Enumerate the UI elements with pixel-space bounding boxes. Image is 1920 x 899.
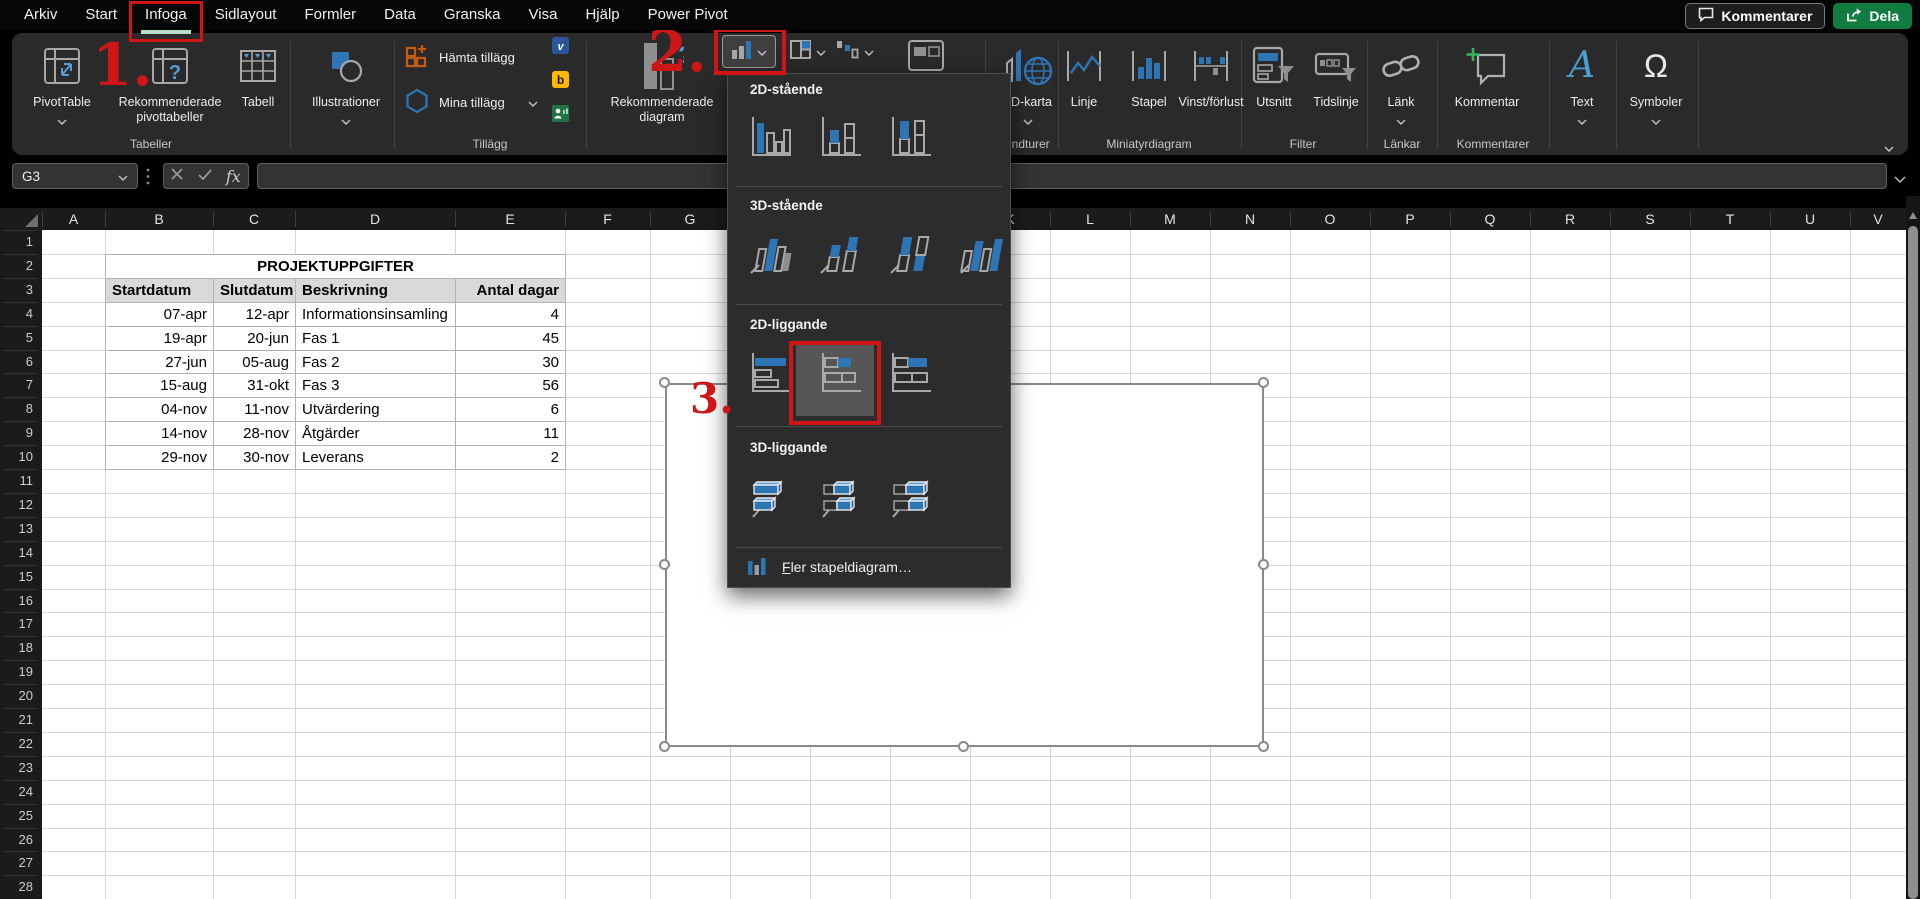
tab-label: Data — [384, 6, 416, 23]
tab-hjälp[interactable]: Hjälp — [571, 0, 633, 30]
group-label-tabeller: Tabeller — [130, 137, 172, 153]
people-graph-addin-icon[interactable] — [552, 105, 569, 127]
excel-window: ArkivStartInfogaSidlayoutFormlerDataGran… — [0, 0, 1920, 899]
group-separator — [1437, 41, 1438, 149]
table-cell[interactable]: 6 — [456, 398, 566, 422]
illustrations-label: Illustrationer — [312, 95, 380, 110]
column-header-separator — [1530, 211, 1531, 227]
group-separator — [1616, 41, 1617, 149]
menu-icon-col3d-clustered[interactable] — [742, 226, 800, 284]
column-header-A[interactable]: A — [42, 208, 105, 230]
row-header-separator — [4, 278, 38, 279]
tab-label: Arkiv — [24, 6, 57, 23]
menu-icon-bar3d-clustered[interactable] — [742, 470, 800, 528]
chart-selection-handle[interactable] — [1258, 559, 1269, 570]
column-header-M[interactable]: M — [1130, 208, 1210, 230]
menu-divider — [736, 547, 1002, 548]
tab-formler[interactable]: Formler — [290, 0, 370, 30]
timeline-button[interactable]: Tidslinje — [1305, 37, 1367, 110]
line-button[interactable]: Linje — [1053, 37, 1115, 110]
ribbon-tabs: ArkivStartInfogaSidlayoutFormlerDataGran… — [10, 0, 742, 30]
table-header-cell[interactable]: Antal dagar — [456, 279, 566, 303]
gridline-horizontal — [42, 851, 1906, 852]
svg-text:?: ? — [169, 62, 181, 84]
cancel-icon[interactable] — [171, 167, 183, 185]
group-label-miniatyrdiagram: Miniatyrdiagram — [1106, 137, 1191, 153]
get-addins-icon — [404, 43, 430, 72]
gridline-horizontal — [42, 756, 1906, 757]
column-header-N[interactable]: N — [1210, 208, 1290, 230]
row-header-separator — [4, 732, 38, 733]
group-separator — [1367, 41, 1368, 149]
waterfall-chart-icon — [836, 40, 859, 64]
column-header-Q[interactable]: Q — [1450, 208, 1530, 230]
row-header-21[interactable]: 21 — [0, 708, 42, 732]
column-header-separator — [1770, 211, 1771, 227]
annotation-step-2: 2. — [648, 24, 706, 80]
menu-section-3d-stående: 3D-stående — [750, 198, 823, 213]
row-header-4[interactable]: 4 — [0, 302, 42, 326]
symbols-button[interactable]: ΩSymboler — [1622, 37, 1690, 130]
table-button[interactable]: Tabell — [228, 37, 288, 110]
timeline-label: Tidslinje — [1313, 95, 1358, 110]
pivottable-icon — [42, 37, 82, 95]
table-cell[interactable]: 29-nov — [106, 446, 214, 470]
group-label-filter: Filter — [1290, 137, 1317, 153]
sparkline-winloss-icon — [1191, 37, 1231, 95]
group-separator — [1549, 41, 1550, 149]
row-header-separator — [4, 589, 38, 590]
hierarchy-chart-icon — [790, 40, 811, 64]
menu-icon-col3d-stacked[interactable] — [812, 226, 870, 284]
menu-icon-bar3d-stacked[interactable] — [812, 470, 870, 528]
column-header-separator — [1450, 211, 1451, 227]
bing-addin-icon[interactable]: b — [552, 71, 569, 93]
select-all-button[interactable] — [0, 208, 42, 230]
tab-label: Granska — [444, 6, 501, 23]
tab-label: Visa — [529, 6, 558, 23]
group-separator — [586, 41, 587, 149]
recommended-charts-label: Rekommenderade diagram — [588, 95, 736, 125]
row-header-separator — [4, 517, 38, 518]
gridline-horizontal — [42, 780, 1906, 781]
comment-bubble-icon — [1698, 7, 1714, 25]
comments-button-label: Kommentarer — [1721, 8, 1812, 24]
column-header-separator — [1370, 211, 1371, 227]
table-header-cell[interactable]: Startdatum — [106, 279, 214, 303]
menu-section-3d-liggande: 3D-liggande — [750, 440, 827, 455]
my-addins-icon — [404, 88, 430, 117]
column-header-separator — [565, 211, 566, 227]
table-cell[interactable]: 19-apr — [106, 327, 214, 351]
table-cell[interactable]: 27-jun — [106, 351, 214, 375]
table-cell[interactable]: Leverans — [296, 446, 456, 470]
column-header-separator — [295, 211, 296, 227]
visio-addin-icon[interactable]: v — [552, 37, 569, 59]
row-header-separator — [4, 804, 38, 805]
enter-icon[interactable] — [198, 167, 212, 185]
chart-selection-handle[interactable] — [659, 741, 670, 752]
get-addins-button[interactable]: Hämta tillägg — [404, 43, 515, 72]
column-header-separator — [105, 211, 106, 227]
row-header-22[interactable]: 22 — [0, 732, 42, 756]
column-header-B[interactable]: B — [105, 208, 213, 230]
row-header-separator — [4, 636, 38, 637]
menu-icon-bar-100[interactable] — [882, 344, 940, 402]
comments-button[interactable]: Kommentarer — [1685, 3, 1825, 29]
annotation-box-infoga — [129, 1, 203, 42]
chart-selection-handle[interactable] — [659, 559, 670, 570]
table-cell[interactable]: 2 — [456, 446, 566, 470]
maps-icon[interactable] — [908, 40, 944, 76]
table-cell[interactable]: Fas 2 — [296, 351, 456, 375]
table-cell[interactable]: 31-okt — [214, 374, 296, 398]
menu-icon-col-100[interactable] — [882, 108, 940, 166]
new-comment-icon — [1464, 37, 1510, 95]
table-header-cell[interactable]: Beskrivning — [296, 279, 456, 303]
tab-label: Power Pivot — [648, 6, 728, 23]
group-separator — [1698, 41, 1699, 149]
line-label: Linje — [1071, 95, 1097, 110]
winloss-label: Vinst/förlust — [1178, 95, 1243, 110]
timeline-icon — [1314, 37, 1358, 95]
table-cell[interactable]: 04-nov — [106, 398, 214, 422]
column-header-U[interactable]: U — [1770, 208, 1850, 230]
row-header-17[interactable]: 17 — [0, 612, 42, 636]
column-header-separator — [213, 211, 214, 227]
column-header-separator — [42, 211, 43, 227]
row-header-27[interactable]: 27 — [0, 851, 42, 875]
column-header-separator — [1610, 211, 1611, 227]
row-header-separator — [4, 302, 38, 303]
tab-label: Sidlayout — [215, 6, 277, 23]
get-addins-label: Hämta tillägg — [439, 50, 515, 65]
insert-function-icon[interactable]: fx — [226, 167, 241, 186]
symbols-icon: Ω — [1644, 37, 1668, 95]
collapse-ribbon-icon[interactable] — [1884, 139, 1894, 157]
menu-section-2d-liggande: 2D-liggande — [750, 317, 827, 332]
row-header-separator — [4, 350, 38, 351]
row-header-9[interactable]: 9 — [0, 421, 42, 445]
row-header-25[interactable]: 25 — [0, 804, 42, 828]
table-cell[interactable]: Informationsinsamling — [296, 303, 456, 327]
column-header-separator — [1210, 211, 1211, 227]
symbols-label: Symboler — [1630, 95, 1683, 110]
sparkline-column-icon — [1129, 37, 1169, 95]
formula-bar-grip-icon — [146, 168, 150, 190]
slicer-icon — [1252, 37, 1296, 95]
column-header-E[interactable]: E — [455, 208, 565, 230]
chart-selection-handle[interactable] — [1258, 741, 1269, 752]
column-header-separator — [1050, 211, 1051, 227]
menu-icon-col-stacked[interactable] — [812, 108, 870, 166]
menu-icon-bar3d-100[interactable] — [882, 470, 940, 528]
comment-button[interactable]: Kommentar — [1444, 37, 1530, 110]
menu-icon-col-clustered[interactable] — [742, 108, 800, 166]
chevron-down-icon — [1651, 112, 1661, 130]
row-header-18[interactable]: 18 — [0, 636, 42, 660]
table-cell[interactable]: 15-aug — [106, 374, 214, 398]
column-header-separator — [1290, 211, 1291, 227]
my-addins-button[interactable]: Mina tillägg — [404, 88, 538, 117]
annotation-box-chart-button — [714, 28, 786, 75]
recommended-pivottables-label: Rekommenderade pivottabeller — [104, 95, 236, 125]
row-header-separator — [4, 373, 38, 374]
column-header-L[interactable]: L — [1050, 208, 1130, 230]
group-separator — [394, 41, 395, 149]
table-cell[interactable]: 07-apr — [106, 303, 214, 327]
column-header-F[interactable]: F — [565, 208, 650, 230]
row-header-13[interactable]: 13 — [0, 517, 42, 541]
tab-label: Start — [85, 6, 117, 23]
more-charts-label: Fler stapeldiagram… — [782, 559, 912, 575]
tab-granska[interactable]: Granska — [430, 0, 515, 30]
map3d-label: 3D-karta — [1004, 95, 1052, 110]
tab-label: Formler — [304, 6, 356, 23]
table-title-cell[interactable]: PROJEKTUPPGIFTER — [106, 255, 566, 279]
more-charts-icon — [746, 556, 768, 579]
table-header-cell[interactable]: Slutdatum — [214, 279, 296, 303]
annotation-step-1: 1. — [92, 36, 153, 94]
row-header-15[interactable]: 15 — [0, 565, 42, 589]
row-header-separator — [4, 493, 38, 494]
text-label: Text — [1571, 95, 1594, 110]
group-separator — [290, 41, 291, 149]
insert-hierarchy-chart-button[interactable] — [790, 40, 826, 64]
column-header-S[interactable]: S — [1610, 208, 1690, 230]
column-header-V[interactable]: V — [1850, 208, 1906, 230]
formula-input[interactable] — [257, 163, 1887, 189]
menu-icon-col3d-100[interactable] — [882, 226, 940, 284]
gridline-horizontal — [42, 804, 1906, 805]
column-header-R[interactable]: R — [1530, 208, 1610, 230]
row-header-separator — [4, 851, 38, 852]
slicer-label: Utsnitt — [1256, 95, 1291, 110]
link-icon — [1380, 37, 1422, 95]
menu-divider — [736, 186, 1002, 187]
table-label: Tabell — [242, 95, 275, 110]
comment-label: Kommentar — [1455, 95, 1520, 110]
annotation-step-3: 3. — [690, 378, 734, 420]
chevron-down-icon — [1577, 112, 1587, 130]
illustrations-button[interactable]: Illustrationer — [300, 37, 392, 130]
column-header-P[interactable]: P — [1370, 208, 1450, 230]
table-cell[interactable]: 05-aug — [214, 351, 296, 375]
share-icon — [1846, 7, 1862, 25]
table-cell[interactable]: 14-nov — [106, 422, 214, 446]
table-cell[interactable]: 11-nov — [214, 398, 296, 422]
my-addins-label: Mina tillägg — [439, 95, 505, 110]
name-box-chevron-icon[interactable] — [118, 169, 128, 184]
link-label: Länk — [1387, 95, 1414, 110]
text-icon: A — [1569, 37, 1595, 95]
formula-buttons: fx — [163, 163, 249, 189]
gridline-horizontal — [42, 875, 1906, 876]
row-header-2[interactable]: 2 — [0, 254, 42, 278]
scrollbar-up-arrow-icon[interactable] — [1909, 212, 1917, 219]
menu-section-2d-stående: 2D-stående — [750, 82, 823, 97]
scrollbar-thumb[interactable] — [1908, 226, 1918, 899]
row-header-3[interactable]: 3 — [0, 278, 42, 302]
table-cell[interactable]: 30 — [456, 351, 566, 375]
table-cell[interactable]: 20-jun — [214, 327, 296, 351]
group-label-kommentarer: Kommentarer — [1457, 137, 1530, 153]
name-box-value: G3 — [22, 169, 40, 184]
row-header-19[interactable]: 19 — [0, 660, 42, 684]
link-button[interactable]: Länk — [1372, 37, 1430, 130]
recommended-pivottables-icon: ? — [150, 37, 190, 95]
row-header-8[interactable]: 8 — [0, 397, 42, 421]
row-header-26[interactable]: 26 — [0, 828, 42, 852]
row-header-separator — [4, 828, 38, 829]
row-header-separator — [4, 254, 38, 255]
titlebar-actions: Kommentarer Dela — [1685, 3, 1912, 29]
row-header-separator — [4, 421, 38, 422]
formula-bar-expand-icon[interactable] — [1894, 170, 1906, 188]
row-header-11[interactable]: 11 — [0, 469, 42, 493]
chart-selection-handle[interactable] — [659, 377, 670, 388]
menu-divider — [736, 426, 1002, 427]
text-button[interactable]: AText — [1554, 37, 1610, 130]
column-header-O[interactable]: O — [1290, 208, 1370, 230]
row-header-separator — [4, 708, 38, 709]
row-header-separator — [4, 230, 38, 231]
column-header-D[interactable]: D — [295, 208, 455, 230]
table-cell[interactable]: 12-apr — [214, 303, 296, 327]
tab-visa[interactable]: Visa — [515, 0, 572, 30]
row-header-16[interactable]: 16 — [0, 589, 42, 613]
group-label-tillägg: Tillägg — [473, 137, 508, 153]
menu-icon-col3d[interactable] — [952, 226, 1010, 284]
name-box[interactable]: G3 — [12, 163, 138, 189]
select-all-triangle-icon — [25, 214, 38, 227]
row-header-separator — [4, 326, 38, 327]
table-cell[interactable]: 4 — [456, 303, 566, 327]
chevron-down-icon — [57, 112, 67, 130]
column-header-T[interactable]: T — [1690, 208, 1770, 230]
share-button-label: Dela — [1869, 8, 1899, 24]
table-cell[interactable]: 56 — [456, 374, 566, 398]
row-header-6[interactable]: 6 — [0, 350, 42, 374]
chevron-down-icon — [1396, 112, 1406, 130]
row-header-23[interactable]: 23 — [0, 756, 42, 780]
table-cell[interactable]: Fas 1 — [296, 327, 456, 351]
row-header-separator — [4, 445, 38, 446]
row-header-5[interactable]: 5 — [0, 326, 42, 350]
column-header-separator — [1690, 211, 1691, 227]
tab-infoga[interactable]: Infoga — [131, 0, 201, 30]
row-header-20[interactable]: 20 — [0, 684, 42, 708]
column-header-G[interactable]: G — [650, 208, 730, 230]
row-header-separator — [4, 684, 38, 685]
row-header-separator — [4, 756, 38, 757]
column-header-separator — [650, 211, 651, 227]
chevron-down-icon — [1023, 112, 1033, 130]
tab-start[interactable]: Start — [71, 0, 131, 30]
row-header-1[interactable]: 1 — [0, 230, 42, 254]
chevron-down-icon — [528, 95, 538, 110]
row-header-separator — [4, 541, 38, 542]
ribbon-tab-bar: ArkivStartInfogaSidlayoutFormlerDataGran… — [0, 0, 1920, 30]
column-header-separator — [1850, 211, 1851, 227]
tab-label: Hjälp — [585, 6, 619, 23]
row-header-separator — [4, 469, 38, 470]
row-header-separator — [4, 780, 38, 781]
row-header-28[interactable]: 28 — [0, 875, 42, 899]
tab-power-pivot[interactable]: Power Pivot — [634, 0, 742, 30]
row-header-12[interactable]: 12 — [0, 493, 42, 517]
share-button[interactable]: Dela — [1833, 3, 1912, 29]
pivottable-label: PivotTable — [33, 95, 91, 110]
table-cell[interactable]: 30-nov — [214, 446, 296, 470]
row-header-separator — [4, 397, 38, 398]
illustrations-icon — [328, 37, 364, 95]
row-header-14[interactable]: 14 — [0, 541, 42, 565]
row-header-24[interactable]: 24 — [0, 780, 42, 804]
row-header-separator — [4, 565, 38, 566]
table-cell[interactable]: 28-nov — [214, 422, 296, 446]
annotation-box-stacked-bar — [789, 341, 881, 425]
table-cell[interactable]: 45 — [456, 327, 566, 351]
menu-item-more-charts[interactable]: Fler stapeldiagram… — [738, 552, 1008, 582]
row-header-7[interactable]: 7 — [0, 373, 42, 397]
table-cell[interactable]: Utvärdering — [296, 398, 456, 422]
chevron-down-icon — [816, 43, 826, 61]
insert-waterfall-chart-button[interactable] — [836, 40, 874, 64]
tab-arkiv[interactable]: Arkiv — [10, 0, 71, 30]
table-icon — [238, 37, 278, 95]
project-table: PROJEKTUPPGIFTERStartdatumSlutdatumBeskr… — [105, 254, 566, 470]
table-cell[interactable]: Fas 3 — [296, 374, 456, 398]
tab-data[interactable]: Data — [370, 0, 430, 30]
chart-selection-handle[interactable] — [1258, 377, 1269, 388]
column-label: Stapel — [1131, 95, 1166, 110]
chevron-down-icon — [341, 112, 351, 130]
column-button[interactable]: Stapel — [1118, 37, 1180, 110]
table-cell[interactable]: 11 — [456, 422, 566, 446]
table-cell[interactable]: Åtgärder — [296, 422, 456, 446]
svg-text:v: v — [557, 41, 564, 53]
chevron-down-icon — [864, 43, 874, 61]
chart-selection-handle[interactable] — [958, 741, 969, 752]
slicer-button[interactable]: Utsnitt — [1245, 37, 1303, 110]
tab-sidlayout[interactable]: Sidlayout — [201, 0, 291, 30]
group-label-länkar: Länkar — [1384, 137, 1421, 153]
chart-type-menu: 2D-stående3D-stående2D-liggande3D-liggan… — [727, 73, 1011, 588]
column-header-separator — [1130, 211, 1131, 227]
row-header-separator — [4, 875, 38, 876]
gridline-horizontal — [42, 828, 1906, 829]
column-header-separator — [455, 211, 456, 227]
sparkline-line-icon — [1064, 37, 1104, 95]
menu-divider — [736, 304, 1002, 305]
svg-text:b: b — [557, 73, 564, 87]
row-header-10[interactable]: 10 — [0, 445, 42, 469]
winloss-button[interactable]: Vinst/förlust — [1182, 37, 1240, 110]
row-header-separator — [4, 612, 38, 613]
row-header-separator — [4, 660, 38, 661]
column-header-C[interactable]: C — [213, 208, 295, 230]
